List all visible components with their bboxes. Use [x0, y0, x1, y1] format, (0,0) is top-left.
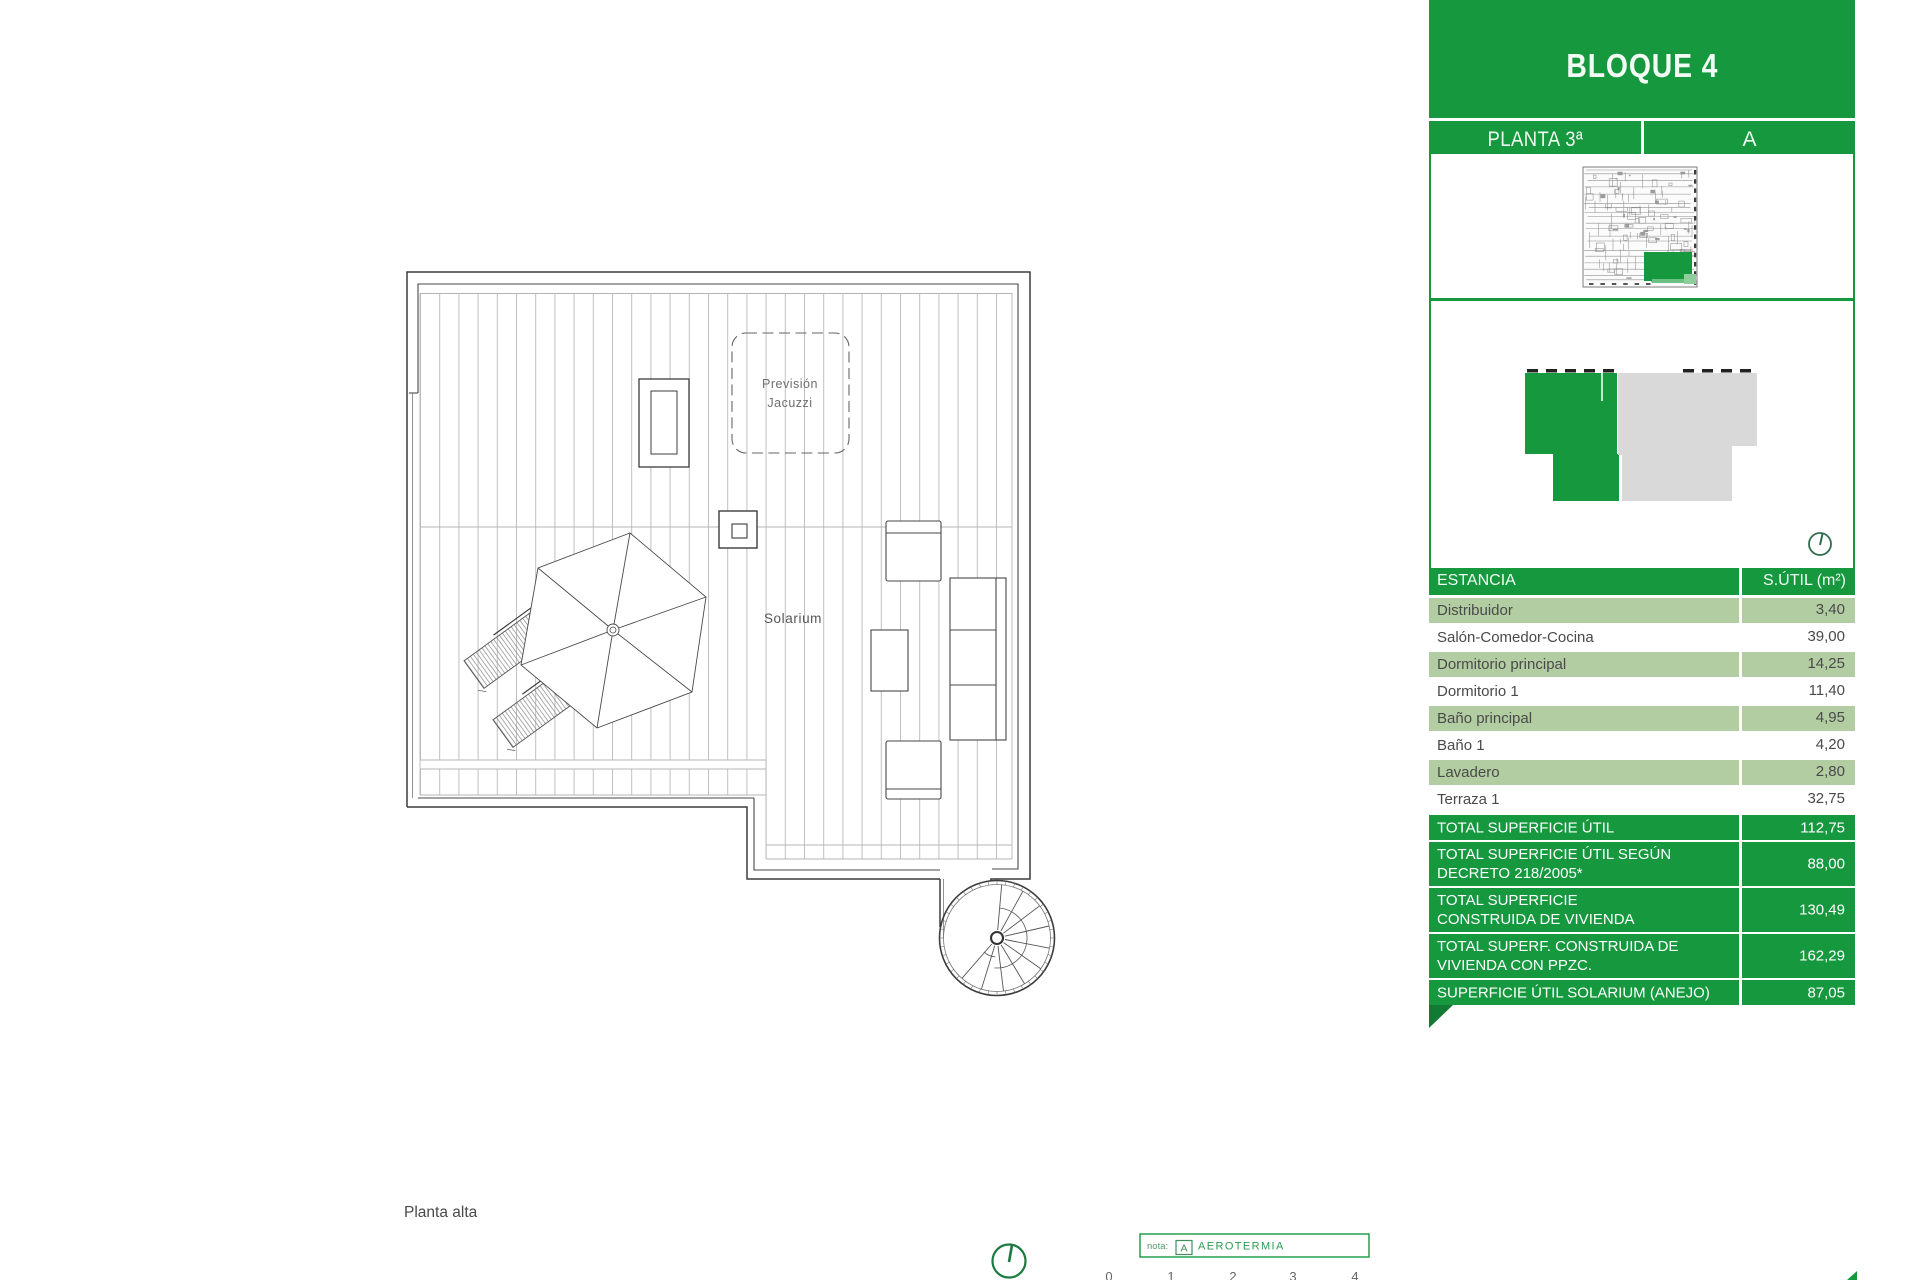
svg-text:Jacuzzi: Jacuzzi: [767, 396, 812, 410]
svg-text:3: 3: [1289, 1269, 1296, 1280]
svg-text:A: A: [1180, 1243, 1187, 1255]
svg-text:4: 4: [1351, 1269, 1358, 1280]
svg-text:1: 1: [1167, 1269, 1174, 1280]
svg-text:Solarium: Solarium: [764, 611, 822, 626]
svg-text:AEROTERMIA: AEROTERMIA: [1198, 1241, 1285, 1253]
svg-text:nota:: nota:: [1147, 1241, 1168, 1252]
svg-text:2: 2: [1229, 1269, 1236, 1280]
svg-text:Previsión: Previsión: [762, 377, 818, 391]
svg-text:0: 0: [1105, 1269, 1112, 1280]
